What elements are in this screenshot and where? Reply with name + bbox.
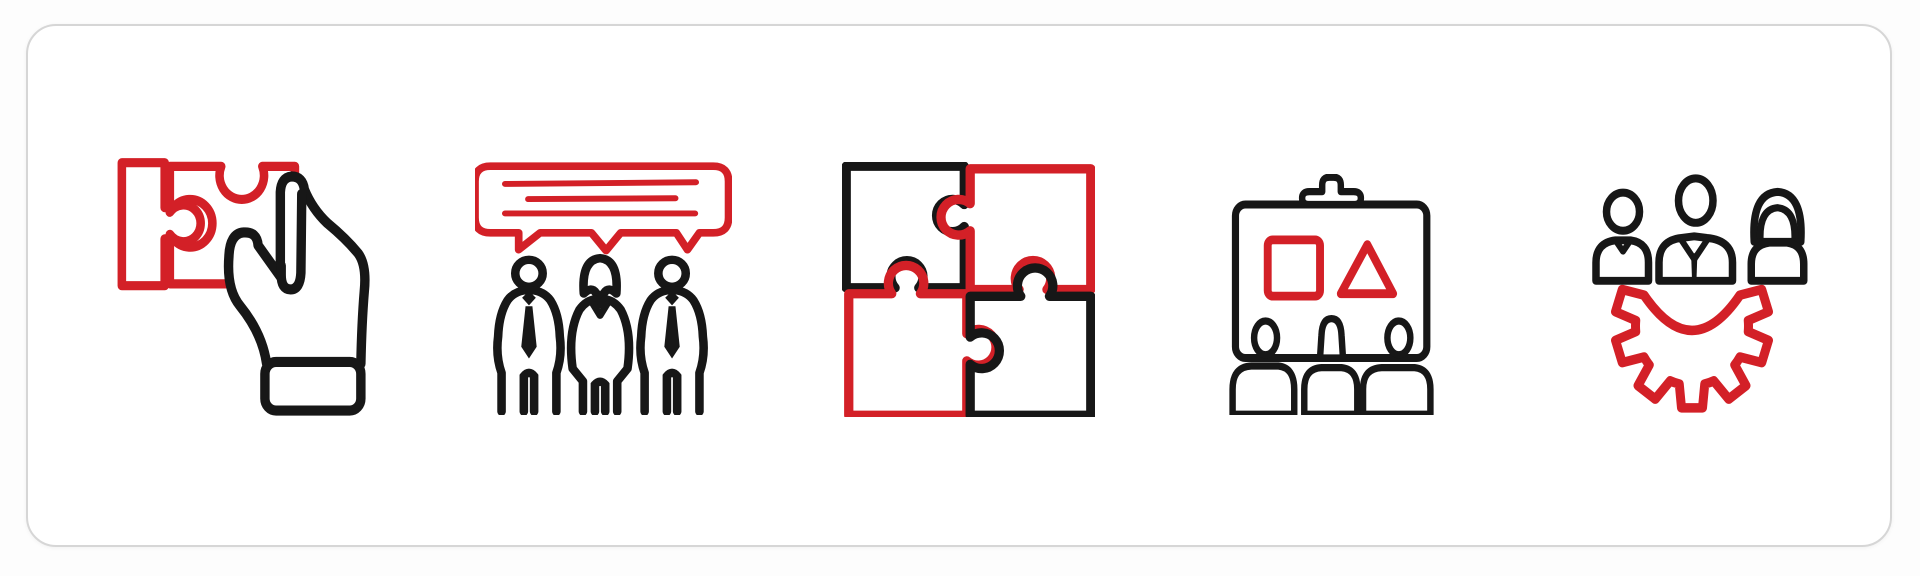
hand-holding-puzzle-piece-icon [115, 137, 372, 417]
team-management-gear-icon [1587, 172, 1812, 415]
person-head [658, 260, 685, 287]
business-presentation-icon [1224, 174, 1439, 415]
jigsaw-teamwork-icon [842, 162, 1095, 417]
speech-bubble [475, 166, 729, 250]
audience-body [1233, 366, 1295, 414]
square-shape [1268, 240, 1320, 296]
person-legs [667, 373, 677, 412]
audience-head [1387, 321, 1410, 355]
person-head [515, 260, 542, 287]
gear-shape [1616, 290, 1769, 408]
person-legs [595, 382, 605, 412]
audience-head [1254, 321, 1277, 355]
tie [1691, 253, 1697, 279]
wrist-cuff [265, 362, 361, 411]
tie [664, 291, 679, 358]
member-body [1751, 243, 1804, 281]
audience-body [1304, 368, 1357, 415]
member-head [1679, 178, 1714, 222]
team-communication-icon [475, 162, 732, 415]
member-head [1607, 193, 1640, 231]
audience-body [1363, 368, 1430, 415]
board-clip [1302, 177, 1361, 204]
person-legs [524, 373, 534, 412]
triangle-shape [1341, 245, 1393, 294]
person-head-female [583, 258, 616, 298]
icon-card [26, 24, 1892, 547]
tie [521, 291, 536, 358]
speech-text-lines [505, 182, 696, 213]
canvas: { "page": { "description": "Business tea… [0, 0, 1920, 576]
audience-head-female [1320, 319, 1343, 358]
